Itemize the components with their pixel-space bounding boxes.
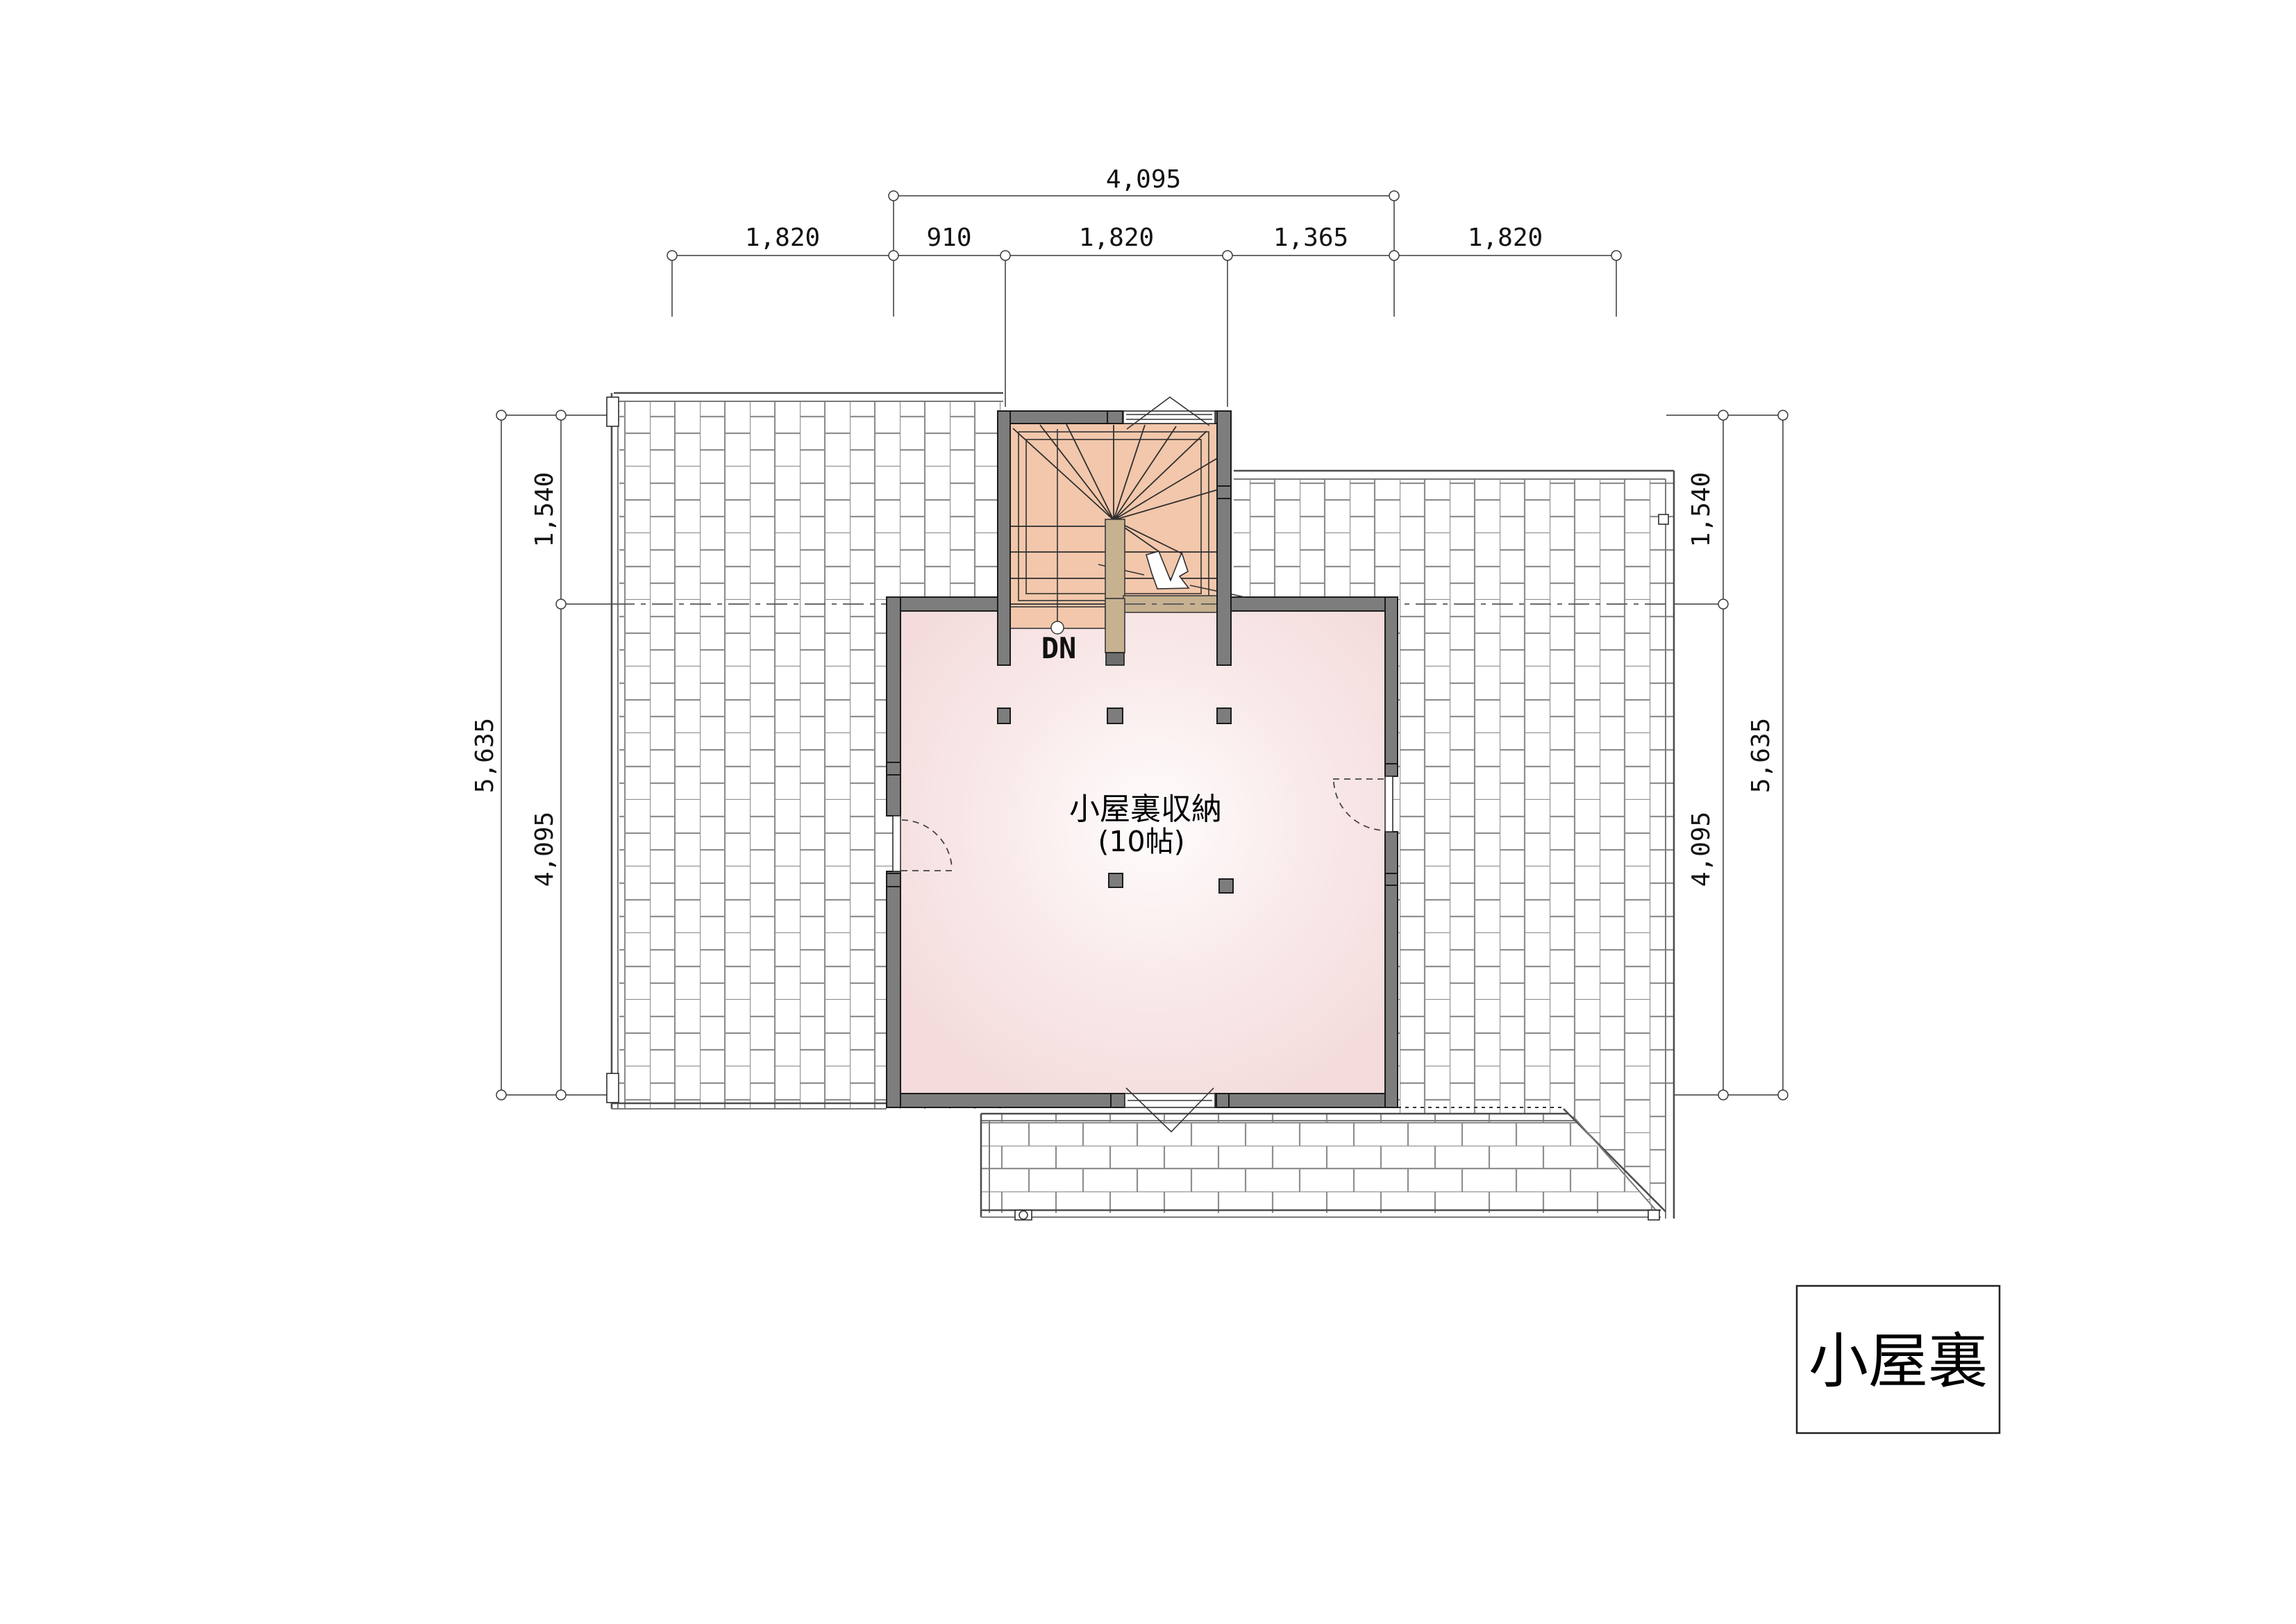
dim-left-upper: 1,540 xyxy=(530,472,559,547)
attic-floor-plan-drawing: 4,095 1,820 910 1,820 1,365 1,820 1,540 … xyxy=(0,0,2296,1624)
stair-wall-right xyxy=(1217,411,1231,665)
stair-post-left xyxy=(998,708,1010,723)
stair-wall-top-left xyxy=(998,411,1123,424)
stair-wall-left xyxy=(998,411,1010,665)
wall-left-upper xyxy=(887,597,900,816)
room-post-left xyxy=(1109,873,1123,887)
wall-top-left-segment xyxy=(887,597,998,611)
stair-guard-wall xyxy=(1105,598,1125,653)
dim-right-lower: 4,095 xyxy=(1687,812,1716,887)
stair-newel xyxy=(1105,519,1125,598)
gutter-clip-right xyxy=(1648,1210,1659,1220)
wall-bottom-left-segment xyxy=(887,1094,1125,1107)
dim-top-seg-4: 1,365 xyxy=(1273,224,1348,252)
dim-top-seg-3: 1,820 xyxy=(1079,224,1154,252)
left-door-leaf xyxy=(893,816,900,871)
dim-left-overall: 5,635 xyxy=(471,718,499,793)
dim-right-overall: 5,635 xyxy=(1747,718,1775,793)
title-block-label: 小屋裏 xyxy=(1809,1327,1988,1396)
wall-top-right-segment xyxy=(1231,597,1398,611)
left-roof-edge-clip-bottom xyxy=(607,1073,619,1103)
stair-down-label: DN xyxy=(1041,631,1077,665)
title-block: 小屋裏 xyxy=(1797,1286,2000,1433)
wall-left-lower xyxy=(887,871,900,1107)
dim-left-lower: 4,095 xyxy=(530,812,559,887)
dim-top-seg-1: 1,820 xyxy=(745,224,820,252)
bottom-roof-hatch xyxy=(981,1114,1658,1213)
stair-post-center xyxy=(1107,708,1123,723)
room-size-label: (10帖) xyxy=(1098,825,1184,858)
left-roof-edge-clip-top xyxy=(607,397,619,426)
stair-guard-cap xyxy=(1106,653,1124,665)
dim-right-upper: 1,540 xyxy=(1687,472,1716,547)
stair-post-right xyxy=(1217,708,1231,723)
wall-bottom-right-segment xyxy=(1215,1094,1398,1107)
bottom-roof xyxy=(981,1109,1666,1220)
attic-storage-room: 小屋裏収納 (10帖) xyxy=(887,597,1398,1132)
wall-right-upper xyxy=(1385,597,1398,776)
dim-top-overall: 4,095 xyxy=(1106,165,1181,194)
floor-plan-page: 4,095 1,820 910 1,820 1,365 1,820 1,540 … xyxy=(0,0,2296,1624)
dim-top-seg-5: 1,820 xyxy=(1468,224,1543,252)
dim-top-seg-2: 910 xyxy=(926,224,971,252)
right-door-leaf xyxy=(1385,776,1393,832)
gutter-clip-left xyxy=(1015,1210,1032,1220)
room-name-label: 小屋裏収納 xyxy=(1069,792,1222,827)
right-roof-edge-clip xyxy=(1659,514,1668,524)
room-post-right xyxy=(1219,879,1233,893)
